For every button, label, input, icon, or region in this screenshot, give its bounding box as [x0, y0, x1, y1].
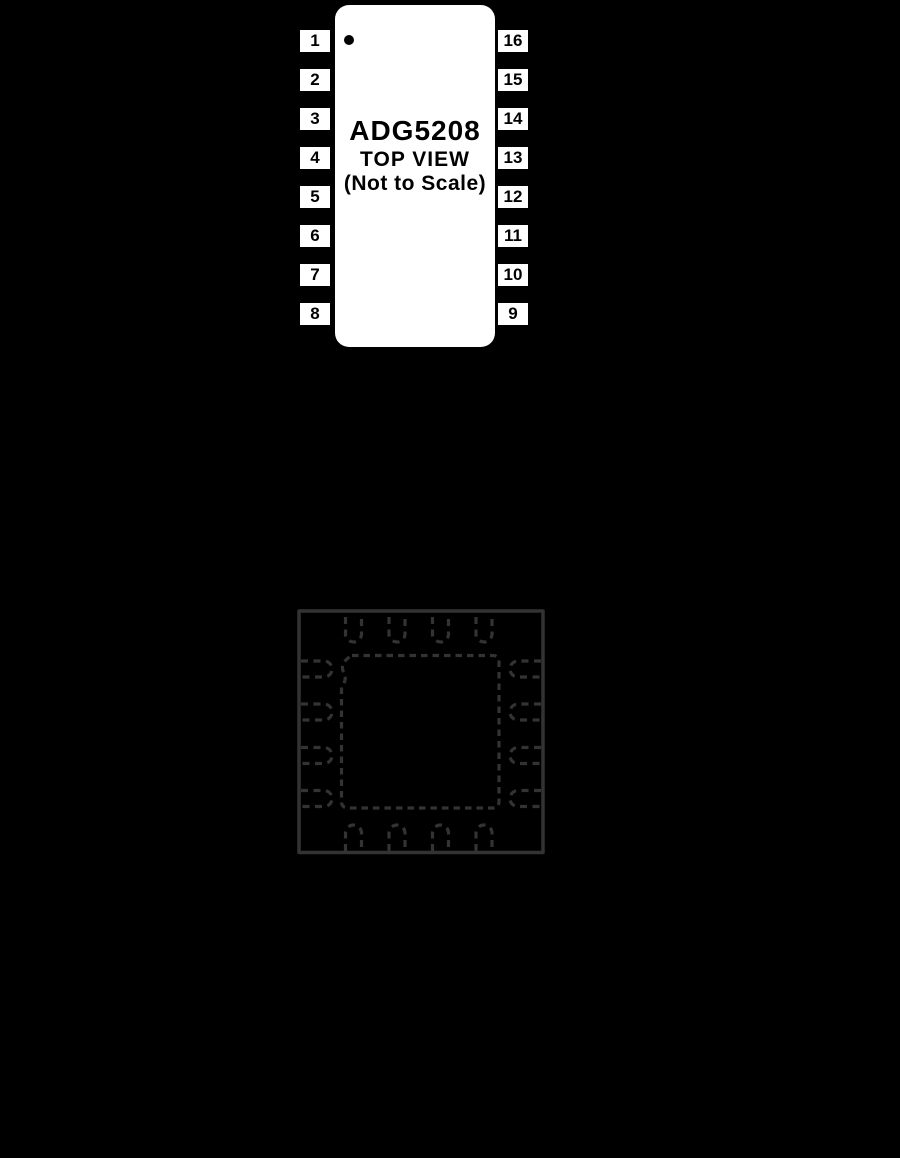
lfcsp-top-pin-1	[346, 617, 362, 642]
lfcsp-top-pin-2	[389, 617, 405, 642]
pin-box-15: 15	[498, 69, 528, 91]
lfcsp-bottom-pins	[346, 825, 493, 851]
lfcsp-bottom-pin-2	[389, 825, 405, 851]
pin-box-2: 2	[300, 69, 330, 91]
lfcsp-top-pin-3	[433, 617, 449, 642]
lfcsp-top-pins	[346, 617, 493, 642]
pin-box-16: 16	[498, 30, 528, 52]
lfcsp-outline-strokes	[299, 611, 543, 853]
pin1-dot-icon	[344, 35, 354, 45]
pin-box-12: 12	[498, 186, 528, 208]
lfcsp-bottom-pin-4	[476, 825, 492, 851]
lfcsp-left-pins	[301, 661, 332, 807]
chip-subtitle: TOP VIEW	[335, 148, 495, 171]
pin-box-6: 6	[300, 225, 330, 247]
chip-title: ADG5208	[335, 117, 495, 145]
pin-box-7: 7	[300, 264, 330, 286]
lfcsp-bottom-pin-1	[346, 825, 362, 851]
lfcsp-top-pin-4	[476, 617, 492, 642]
lfcsp-left-pin-4	[301, 791, 332, 807]
pin-configuration-figure: ADG5208 TOP VIEW (Not to Scale) 1 2 3 4 …	[0, 0, 900, 1158]
pin-box-5: 5	[300, 186, 330, 208]
lfcsp-outer-frame	[299, 611, 543, 853]
pin-box-1: 1	[300, 30, 330, 52]
lfcsp-bottom-pin-3	[433, 825, 449, 851]
lfcsp-left-pin-2	[301, 704, 332, 720]
lfcsp-right-pin-3	[510, 748, 541, 764]
lfcsp-right-pin-2	[510, 704, 541, 720]
chip-label-stack: ADG5208 TOP VIEW (Not to Scale)	[335, 117, 495, 195]
pin-box-4: 4	[300, 147, 330, 169]
lfcsp-right-pin-4	[510, 791, 541, 807]
lfcsp-right-pins	[510, 661, 541, 807]
lfcsp-exposed-pad	[342, 656, 500, 809]
lfcsp-left-pin-3	[301, 748, 332, 764]
chip-body: ADG5208 TOP VIEW (Not to Scale)	[335, 5, 495, 347]
pin-box-13: 13	[498, 147, 528, 169]
pin-box-14: 14	[498, 108, 528, 130]
lfcsp-outline-diagram	[296, 606, 546, 860]
lfcsp-right-pin-1	[510, 661, 541, 677]
pin-box-9: 9	[498, 303, 528, 325]
pin-box-8: 8	[300, 303, 330, 325]
pin-box-11: 11	[498, 225, 528, 247]
pin-box-3: 3	[300, 108, 330, 130]
chip-subtitle2: (Not to Scale)	[335, 172, 495, 195]
lfcsp-left-pin-1	[301, 661, 332, 677]
pin-box-10: 10	[498, 264, 528, 286]
